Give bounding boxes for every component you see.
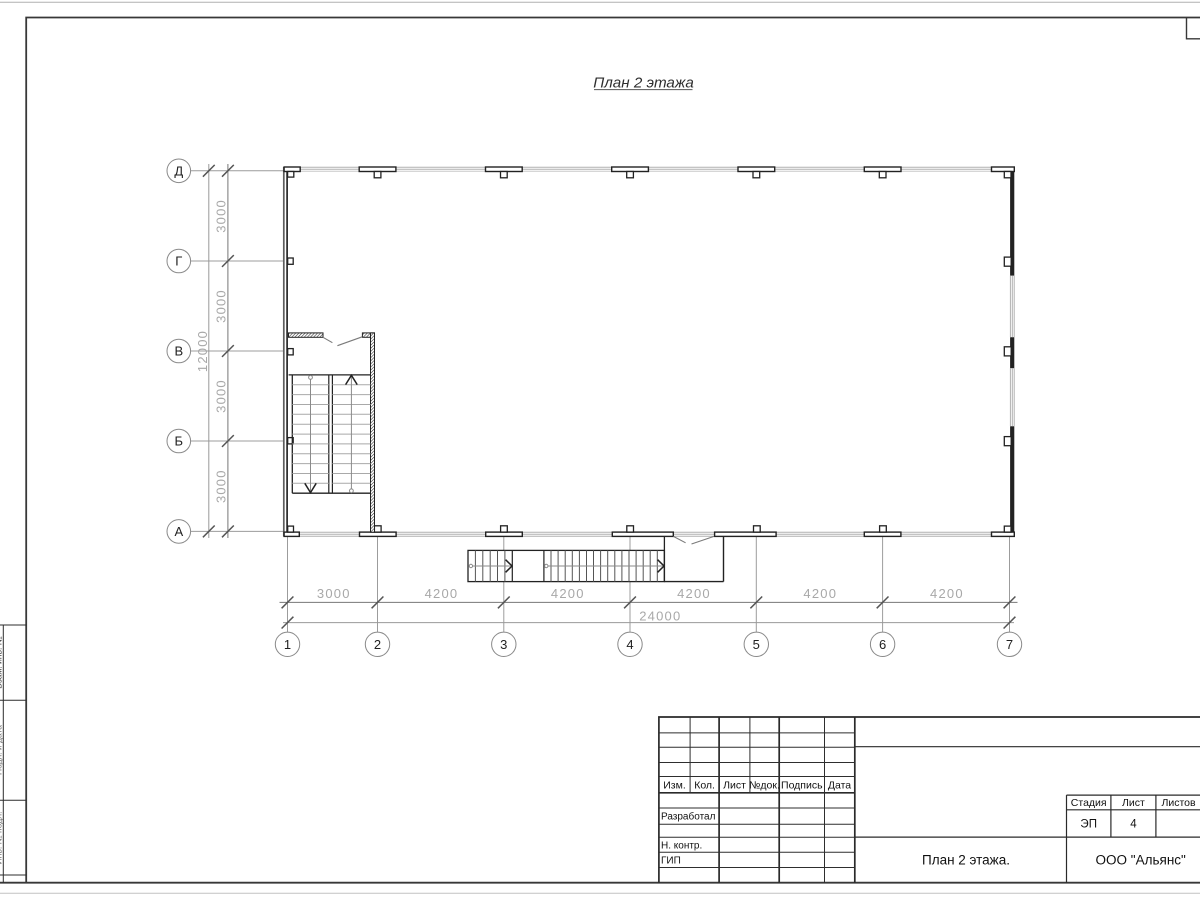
svg-text:Г: Г [175,254,182,269]
svg-text:Взам. инв. №: Взам. инв. № [0,636,4,689]
svg-text:Изм.: Изм. [663,780,686,792]
svg-text:№док.: №док. [749,780,780,792]
svg-text:2: 2 [374,637,381,652]
svg-text:4: 4 [1130,818,1137,830]
svg-text:В: В [174,344,183,359]
svg-text:4200: 4200 [930,586,964,601]
svg-text:5: 5 [753,637,760,652]
svg-text:Подп. и дата: Подп. и дата [0,725,4,775]
svg-text:7: 7 [1006,637,1013,652]
svg-text:Лист: Лист [1122,797,1145,809]
svg-text:Д: Д [174,164,183,179]
svg-text:Кол.: Кол. [694,780,715,792]
svg-text:Стадия: Стадия [1071,797,1107,809]
svg-text:Разработал: Разработал [661,811,716,823]
svg-text:3000: 3000 [317,586,351,601]
svg-text:ГИП: ГИП [661,856,681,867]
svg-text:План 2 этажа: План 2 этажа [593,74,694,91]
svg-text:План 2 этажа.: План 2 этажа. [922,853,1010,868]
svg-text:ООО "Альянс": ООО "Альянс" [1096,853,1186,868]
svg-text:24000: 24000 [639,609,681,624]
svg-text:ЭП: ЭП [1080,818,1097,830]
svg-text:3000: 3000 [213,469,228,503]
svg-text:3000: 3000 [213,289,228,323]
svg-text:4200: 4200 [425,586,459,601]
svg-text:6: 6 [879,637,886,652]
svg-text:Н. контр.: Н. контр. [661,840,702,851]
svg-text:4200: 4200 [803,586,837,601]
svg-text:А: А [174,524,183,539]
svg-text:1: 1 [284,637,291,652]
svg-text:Дата: Дата [828,780,851,792]
svg-text:3000: 3000 [213,199,228,233]
svg-text:3000: 3000 [213,379,228,413]
svg-text:Б: Б [175,434,184,449]
svg-text:Лист: Лист [723,780,746,792]
svg-text:4: 4 [626,637,633,652]
svg-text:Инв. № подл.: Инв. № подл. [0,812,4,865]
svg-text:4200: 4200 [677,586,711,601]
svg-text:4200: 4200 [551,586,585,601]
svg-text:Листов: Листов [1161,797,1196,809]
svg-text:12000: 12000 [195,330,210,372]
svg-text:Подпись: Подпись [781,780,823,792]
svg-text:3: 3 [500,637,507,652]
